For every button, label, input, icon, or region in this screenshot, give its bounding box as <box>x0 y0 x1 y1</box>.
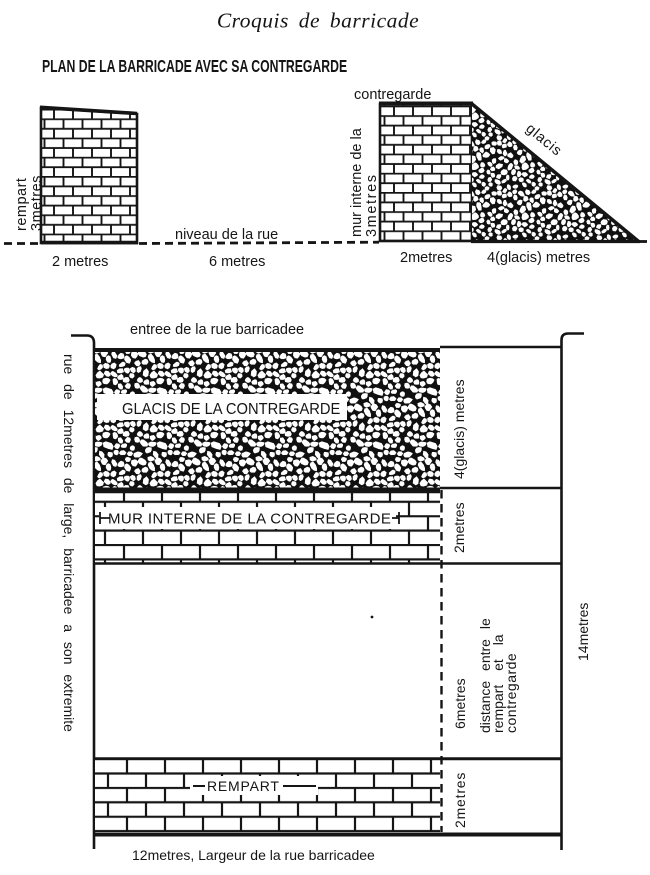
svg-text:14metres: 14metres <box>575 603 591 661</box>
svg-text:4(glacis) metres: 4(glacis) metres <box>487 250 590 266</box>
svg-text:4(glacis) metres: 4(glacis) metres <box>451 379 467 479</box>
svg-text:2metres: 2metres <box>400 250 452 266</box>
svg-text:2metres: 2metres <box>451 502 467 553</box>
svg-text:contregarde: contregarde <box>354 87 431 103</box>
svg-text:rempart: rempart <box>14 178 30 231</box>
svg-text:6 metres: 6 metres <box>209 254 265 270</box>
svg-text:12metres, Largeur de la rue ba: 12metres, Largeur de la rue barricadee <box>132 847 375 863</box>
svg-text:entree de la rue barricadee: entree de la rue barricadee <box>130 322 304 338</box>
svg-text:REMPART: REMPART <box>207 778 280 794</box>
svg-text:niveau de la rue: niveau de la rue <box>175 227 278 243</box>
svg-text:3metres: 3metres <box>29 175 45 231</box>
svg-text:2metres: 2metres <box>452 772 468 828</box>
svg-text:rue de 12metres de large, barr: rue de 12metres de large, barricadee a s… <box>61 354 77 732</box>
svg-text:Croquis de barricade: Croquis de barricade <box>217 9 419 33</box>
svg-text:mur interne de la: mur interne de la <box>349 127 365 237</box>
svg-text:GLACIS DE LA CONTREGARDE: GLACIS DE LA CONTREGARDE <box>122 401 340 418</box>
svg-text:contregarde: contregarde <box>503 653 519 733</box>
svg-text:MUR INTERNE DE LA CONTREGARDE: MUR INTERNE DE LA CONTREGARDE <box>108 511 391 528</box>
svg-text:PLAN DE LA BARRICADE AVEC SA C: PLAN DE LA BARRICADE AVEC SA CONTREGARDE <box>42 57 347 77</box>
svg-text:3metres: 3metres <box>364 173 380 237</box>
svg-text:2 metres: 2 metres <box>52 254 108 270</box>
svg-text:6metres: 6metres <box>452 678 468 729</box>
